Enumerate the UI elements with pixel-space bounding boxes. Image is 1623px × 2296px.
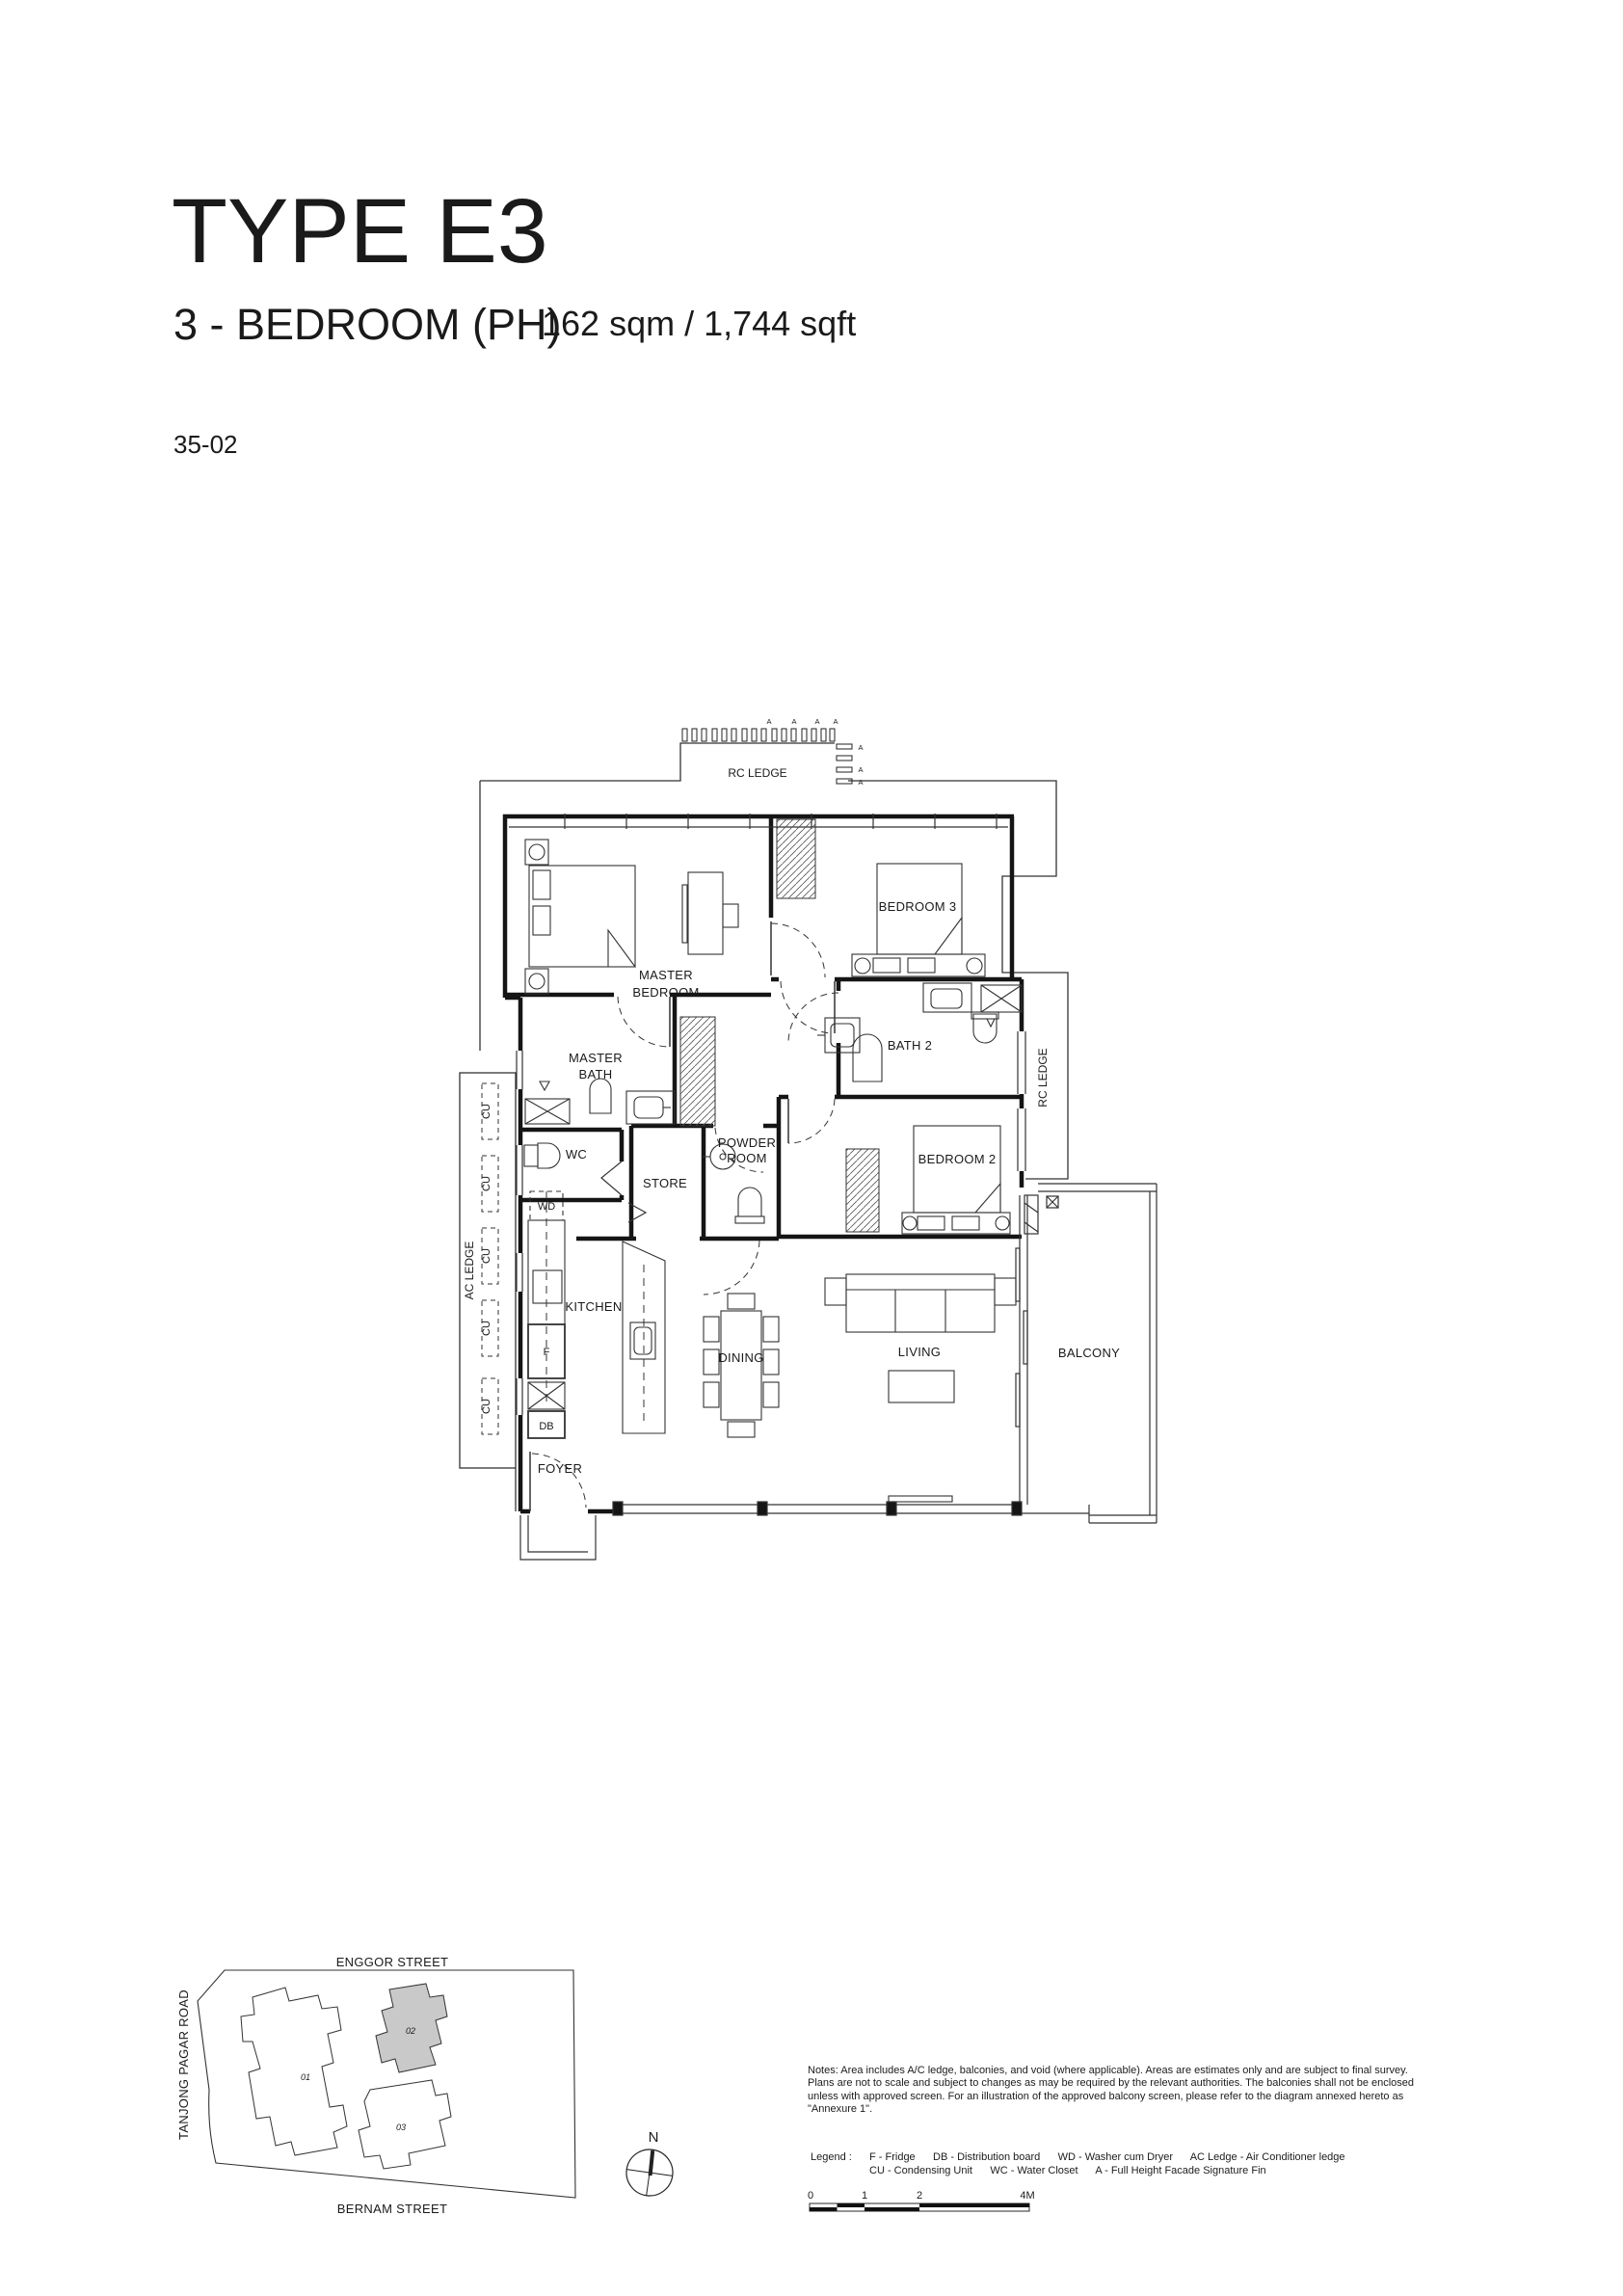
header: TYPE E3 3 - BEDROOM (PH) 162 sqm / 1,744… — [172, 180, 856, 459]
page-title: TYPE E3 — [172, 180, 548, 282]
site-map: ENGGOR STREET BERNAM STREET TANJONG PAGA… — [176, 1955, 676, 2216]
block-01-label: 01 — [301, 2072, 310, 2082]
master-bedroom-label-1: MASTER — [639, 968, 693, 982]
compass-north-label: N — [649, 2129, 659, 2146]
street-label-bernam: BERNAM STREET — [337, 2202, 447, 2216]
bath2-label: BATH 2 — [888, 1038, 932, 1053]
floor-plan-page: TYPE E3 3 - BEDROOM (PH) 162 sqm / 1,744… — [0, 0, 1623, 2296]
cu-label: CU — [481, 1248, 492, 1264]
rc-ledge-right-label: RC LEDGE — [1036, 1048, 1050, 1107]
scale-bar: 0 1 2 4M — [808, 2190, 1035, 2211]
unit-area: 162 sqm / 1,744 sqft — [542, 304, 856, 343]
floor-plan: A A A A A A A — [460, 717, 1157, 1560]
doors — [530, 921, 838, 1511]
rc-ledge-top-label: RC LEDGE — [728, 766, 786, 780]
master-bath-label-2: BATH — [579, 1067, 613, 1081]
living-label: LIVING — [898, 1345, 941, 1359]
bedroom3-label: BEDROOM 3 — [879, 899, 957, 914]
dining-label: DINING — [718, 1350, 763, 1365]
fridge-label: F — [544, 1347, 550, 1358]
legend-title: Legend : — [811, 2151, 852, 2164]
block-03-label: 03 — [396, 2122, 406, 2132]
wd-label: WD — [538, 1201, 555, 1213]
fin-a-label: A — [814, 717, 819, 726]
powder-room-label-2: ROOM — [727, 1151, 767, 1165]
bedroom3-furniture — [852, 864, 985, 976]
windows — [509, 814, 1157, 1560]
scale-tick-2: 2 — [917, 2190, 922, 2202]
foyer-label: FOYER — [538, 1461, 582, 1476]
balcony-label: BALCONY — [1058, 1346, 1120, 1360]
fin-a-label: A — [791, 717, 796, 726]
scale-tick-4m: 4M — [1020, 2190, 1034, 2202]
bath-fixtures — [524, 983, 1022, 1223]
cu-label: CU — [481, 1321, 492, 1336]
street-label-enggor: ENGGOR STREET — [336, 1955, 449, 1969]
bedroom2-label: BEDROOM 2 — [918, 1152, 997, 1166]
compass-needle — [650, 2150, 654, 2176]
page-subtitle: 3 - BEDROOM (PH) — [173, 300, 562, 349]
kitchen-label: KITCHEN — [565, 1299, 622, 1314]
ac-ledge-label: AC LEDGE — [463, 1241, 476, 1300]
master-bedroom-label-2: BEDROOM — [632, 985, 699, 1000]
street-label-tanjong-pagar: TANJONG PAGAR ROAD — [176, 1989, 191, 2140]
cu-label: CU — [481, 1176, 492, 1191]
fin-a-label: A — [858, 743, 863, 752]
legend-line-1: F - Fridge DB - Distribution board WD - … — [869, 2151, 1345, 2164]
cu-label: CU — [481, 1399, 492, 1414]
compass: N — [624, 2129, 676, 2199]
fin-a-label: A — [858, 765, 863, 774]
kitchen-fixtures — [528, 1191, 665, 1438]
unit-number: 35-02 — [173, 430, 238, 459]
fin-a-label: A — [833, 717, 838, 726]
block-02-label: 02 — [406, 2026, 415, 2036]
powder-room-label-1: POWDER — [718, 1135, 776, 1150]
site-block-01 — [241, 1988, 347, 2155]
cu-label: CU — [481, 1104, 492, 1119]
legend-line-2: CU - Condensing Unit WC - Water Closet A… — [869, 2165, 1266, 2177]
master-bedroom-furniture — [525, 840, 738, 994]
store-label: STORE — [643, 1176, 687, 1190]
wc-label: WC — [566, 1147, 587, 1161]
notes-paragraph: Notes: Area includes A/C ledge, balconie… — [808, 2065, 1436, 2117]
db-label: DB — [539, 1421, 553, 1432]
scale-tick-1: 1 — [862, 2190, 867, 2202]
living-dining-furniture — [704, 1274, 1016, 1502]
fin-a-label: A — [858, 778, 863, 787]
plan-canvas: TYPE E3 3 - BEDROOM (PH) 162 sqm / 1,744… — [0, 0, 1623, 2296]
master-bath-label-1: MASTER — [569, 1051, 623, 1065]
fin-a-label: A — [766, 717, 771, 726]
bedroom2-furniture — [902, 1126, 1010, 1234]
scale-tick-0: 0 — [808, 2190, 813, 2202]
